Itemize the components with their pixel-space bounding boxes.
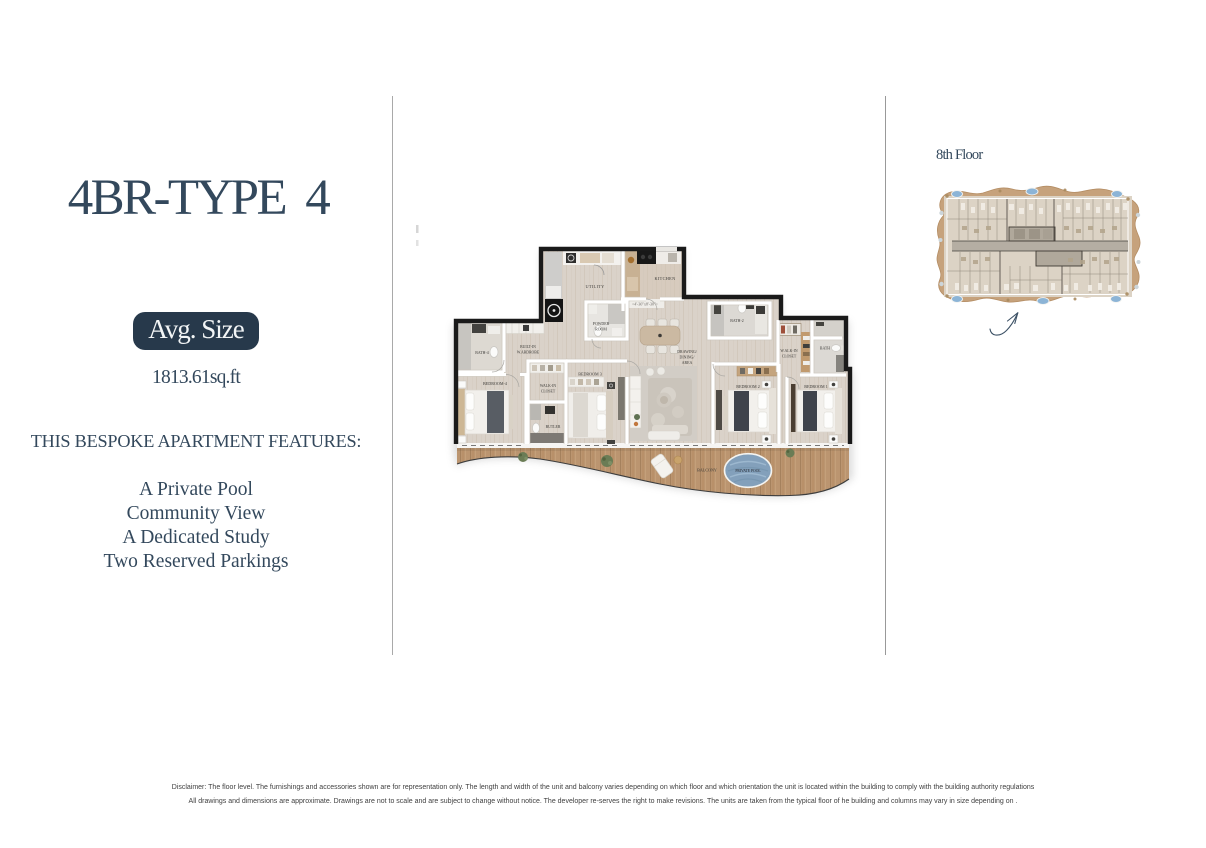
svg-text:W.ARDROBE: W.ARDROBE: [517, 351, 540, 355]
svg-text:BATH-2: BATH-2: [730, 319, 743, 323]
svg-text:DRAWING/: DRAWING/: [677, 350, 697, 354]
svg-text:POWDER: POWDER: [593, 322, 610, 326]
svg-text:W.ALK-IN: W.ALK-IN: [780, 349, 798, 353]
svg-text:BEDROOM-4: BEDROOM-4: [483, 381, 507, 386]
svg-text:CLOSET: CLOSET: [782, 355, 797, 359]
svg-text:<4'-30"x8'-30">: <4'-30"x8'-30">: [632, 302, 659, 307]
svg-text:UTILITY: UTILITY: [585, 284, 604, 289]
svg-text:KITCHEN: KITCHEN: [655, 276, 676, 281]
svg-text:PRIVATE POOL: PRIVATE POOL: [735, 469, 761, 473]
svg-text:DINING/: DINING/: [680, 356, 696, 360]
svg-text:BEDROOM 3: BEDROOM 3: [578, 372, 602, 377]
svg-text:BALCONY: BALCONY: [697, 468, 717, 473]
svg-text:BUILT-IN: BUILT-IN: [520, 345, 536, 349]
svg-text:ROOM: ROOM: [595, 328, 607, 332]
svg-text:BEDROOM 1: BEDROOM 1: [804, 384, 828, 389]
svg-text:BATH-4: BATH-4: [475, 351, 488, 355]
svg-text:CLOSET: CLOSET: [541, 390, 556, 394]
svg-text:AREA: AREA: [682, 361, 693, 365]
svg-text:BATH: BATH: [820, 347, 830, 351]
svg-text:BUTLER: BUTLER: [546, 425, 561, 429]
svg-text:BEDROOM 2: BEDROOM 2: [736, 384, 760, 389]
svg-text:WALK-IN: WALK-IN: [540, 384, 556, 388]
